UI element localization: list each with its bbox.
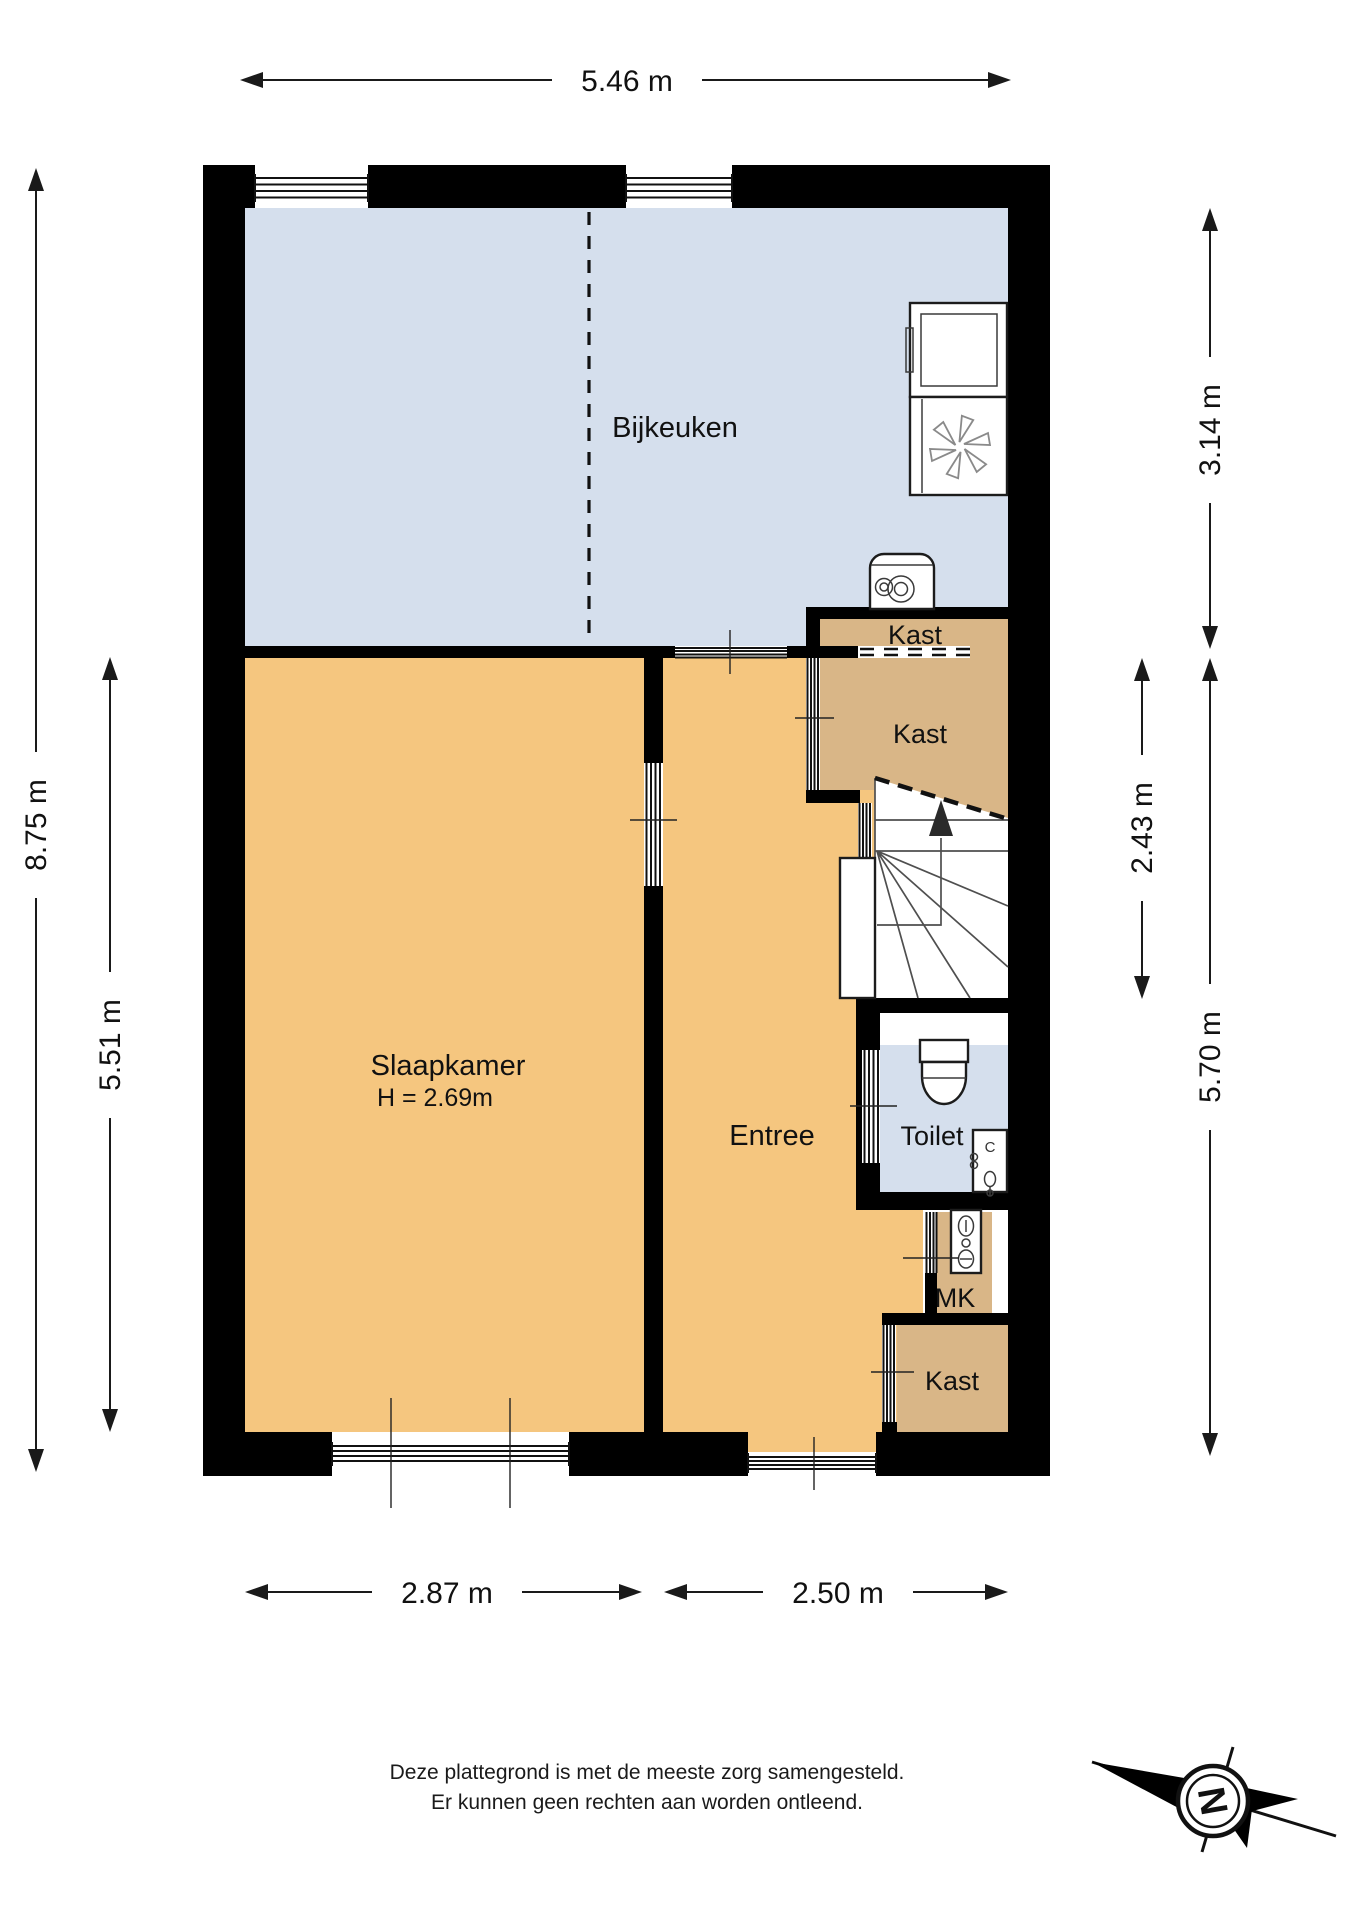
label-meterkast: MK bbox=[935, 1283, 976, 1313]
wall-top-3 bbox=[732, 165, 1050, 208]
sink-icon: C bbox=[971, 1130, 1008, 1196]
door-meterkast bbox=[925, 1212, 937, 1273]
dim-bottom-right-label: 2.50 m bbox=[792, 1577, 884, 1610]
label-entree: Entree bbox=[729, 1120, 814, 1152]
boiler-icon bbox=[870, 554, 934, 609]
wall-bottom-3 bbox=[876, 1432, 1050, 1476]
doorway-bijkeuken-entree bbox=[675, 646, 787, 658]
label-kast-top: Kast bbox=[888, 620, 943, 650]
dim-left-total: 8.75 m bbox=[20, 168, 53, 1472]
compass-needle bbox=[1092, 1762, 1190, 1811]
dim-top-width: 5.46 m bbox=[240, 65, 1011, 98]
dryer-icon bbox=[910, 397, 1007, 495]
dim-top-width-label: 5.46 m bbox=[581, 65, 673, 98]
disclaimer-line1: Deze plattegrond is met de meeste zorg s… bbox=[390, 1761, 905, 1784]
window-bottom-entree bbox=[748, 1452, 876, 1476]
window-bottom-slaapkamer bbox=[332, 1432, 569, 1476]
fridge-icon bbox=[906, 303, 1007, 397]
label-kast-stairs: Kast bbox=[893, 719, 948, 749]
label-toilet: Toilet bbox=[900, 1121, 964, 1151]
room-slaapkamer bbox=[245, 646, 644, 1432]
dim-left-room: 5.51 m bbox=[94, 657, 127, 1432]
door-stairs bbox=[858, 803, 872, 858]
label-kast-bottom: Kast bbox=[925, 1366, 980, 1396]
dim-right-top: 3.14 m bbox=[1194, 208, 1227, 649]
wall-right bbox=[1008, 165, 1050, 1476]
wall-top-2 bbox=[368, 165, 626, 208]
dim-bottom-left-label: 2.87 m bbox=[401, 1577, 493, 1610]
north-compass-icon: N bbox=[1092, 1747, 1336, 1852]
sink-tap-label: C bbox=[985, 1139, 996, 1156]
dim-left-room-label: 5.51 m bbox=[94, 999, 127, 1091]
window-top-right bbox=[626, 165, 732, 208]
wall-kast-top-west bbox=[806, 607, 820, 658]
wall-bottom-2 bbox=[569, 1432, 748, 1476]
dim-left-total-label: 8.75 m bbox=[20, 779, 53, 871]
wall-bijkeuken-slaapkamer bbox=[245, 646, 675, 658]
toilet-icon bbox=[920, 1040, 968, 1104]
wall-left bbox=[203, 165, 245, 1476]
disclaimer: Deze plattegrond is met de meeste zorg s… bbox=[390, 1761, 905, 1814]
window-top-left bbox=[255, 165, 368, 208]
floorplan-drawing: C 5.46 m 8.7 bbox=[0, 0, 1358, 1920]
wall-bottom-1 bbox=[203, 1432, 332, 1476]
door-kast-bottom bbox=[882, 1325, 896, 1422]
dim-right-mid-label: 2.43 m bbox=[1126, 782, 1159, 874]
wall-below-stairs bbox=[856, 998, 1008, 1013]
room-fills bbox=[245, 208, 1008, 1456]
wall-kast-bottom-west bbox=[882, 1422, 897, 1432]
dim-right-mid: 2.43 m bbox=[1126, 658, 1159, 999]
dim-bottom-right: 2.50 m bbox=[664, 1577, 1008, 1610]
wall-below-mk bbox=[882, 1313, 1008, 1325]
dim-bottom-left: 2.87 m bbox=[245, 1577, 642, 1610]
door-entree-kast bbox=[806, 658, 820, 790]
wall-stairs-elbow bbox=[806, 790, 860, 803]
wall-top-1 bbox=[203, 165, 255, 208]
wall-kast-divider bbox=[820, 646, 858, 658]
dim-right-top-label: 3.14 m bbox=[1194, 384, 1227, 476]
dim-right-bottom: 5.70 m bbox=[1194, 658, 1227, 1456]
shaft-niche bbox=[992, 1210, 1008, 1313]
door-slaapkamer bbox=[644, 763, 663, 886]
meter-board-icon bbox=[951, 1210, 981, 1273]
room-kast-top-extension bbox=[970, 646, 1008, 658]
label-slaapkamer: Slaapkamer bbox=[371, 1050, 526, 1082]
label-slaapkamer-height: H = 2.69m bbox=[377, 1084, 493, 1112]
floorplan-page: C 5.46 m 8.7 bbox=[0, 0, 1358, 1920]
dim-right-bottom-label: 5.70 m bbox=[1194, 1011, 1227, 1103]
understairs-cupboard bbox=[840, 858, 875, 998]
label-bijkeuken: Bijkeuken bbox=[612, 412, 738, 444]
wall-toilet-south bbox=[856, 1192, 1008, 1210]
disclaimer-line2: Er kunnen geen rechten aan worden ontlee… bbox=[431, 1791, 863, 1814]
